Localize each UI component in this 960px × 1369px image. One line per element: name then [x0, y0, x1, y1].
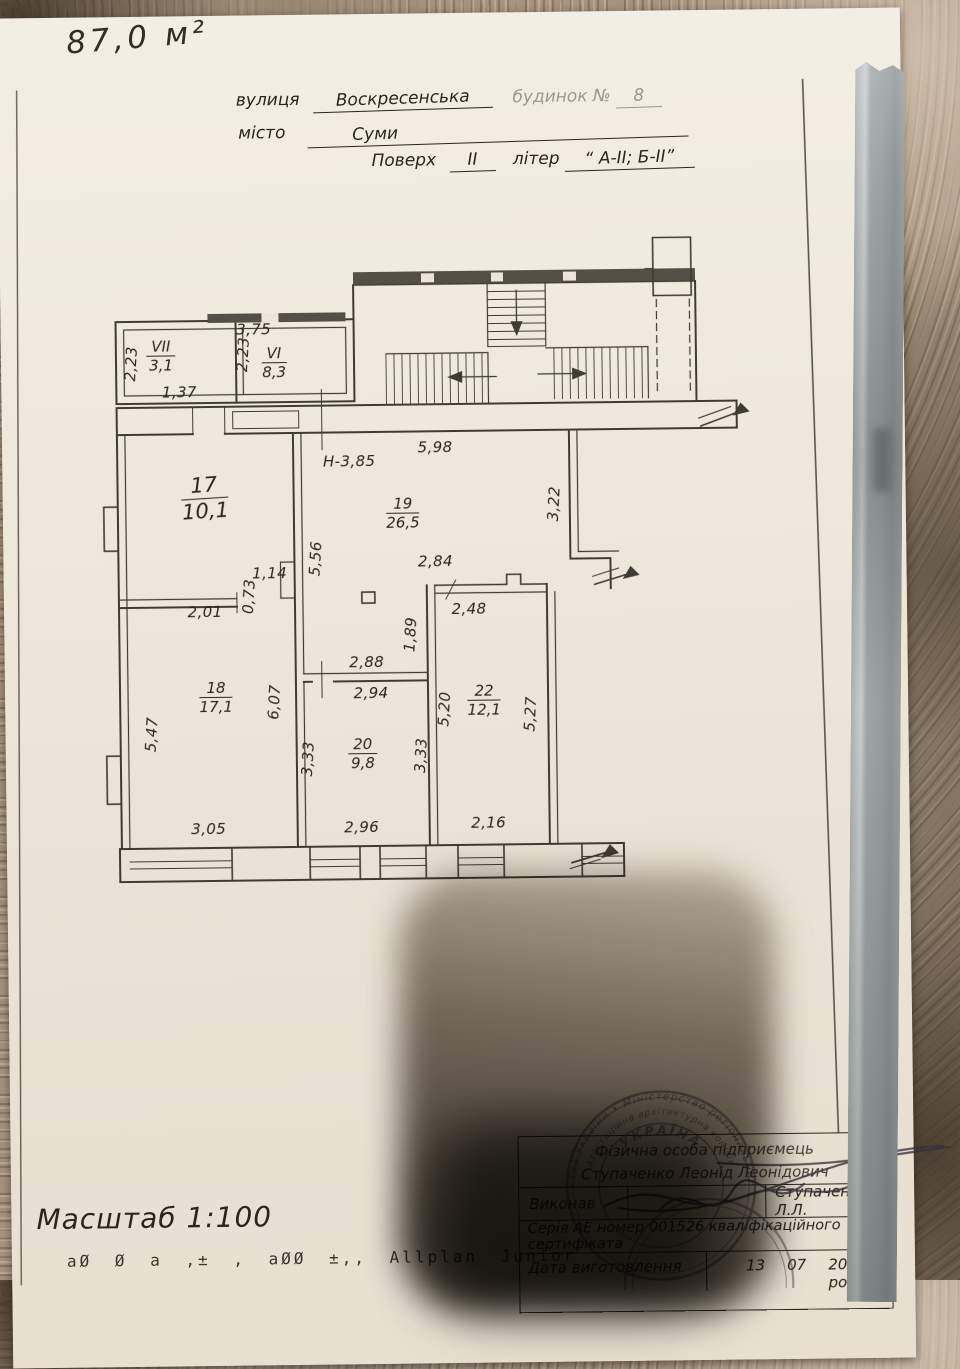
sheet-content: 87,0 м² вулиця Воскресенська будинок № 8…	[0, 0, 960, 1299]
title-block-author-row: Виконав Ступаченко Л.Л.	[519, 1183, 891, 1221]
dim-label: 3,22	[544, 486, 564, 522]
title-block-date-row: Дата виготовлення 13 07 2017 року	[520, 1249, 892, 1294]
dim-label: 5,98	[417, 438, 452, 456]
dim-label: 0,73	[239, 579, 259, 615]
dim-label: 3,05	[191, 820, 226, 838]
room-label-17: 17 10,1	[180, 472, 230, 526]
tape-strip	[847, 62, 906, 1302]
letter-value: “ А-ІІ; Б-ІІ”	[565, 146, 696, 172]
series-line: Серія АЕ номер 001526 кваліфікаційного с…	[528, 1217, 892, 1253]
dim-label: 2,88	[349, 653, 384, 671]
dim-label: 2,84	[418, 552, 453, 570]
dim-label: 2,23	[121, 346, 141, 382]
room-label-vi: VI 8,3	[261, 344, 286, 381]
letter-label: літер	[513, 149, 560, 170]
entity-line1: Фізична особа підприємець	[595, 1140, 814, 1161]
floor-value: ІІ	[449, 149, 496, 172]
date-day: 13	[746, 1256, 765, 1274]
entity-line2: Ступаченко Леонід Леонідович	[581, 1162, 829, 1183]
dim-label: 5,20	[434, 691, 454, 727]
header-floor-row: Поверх ІІ літер “ А-ІІ; Б-ІІ”	[371, 147, 695, 173]
dim-label: 2,01	[187, 603, 222, 621]
dim-label: 2,23	[233, 337, 253, 373]
building-label: будинок №	[512, 86, 610, 107]
street-label: вулиця	[236, 90, 300, 111]
dim-label: 2,48	[451, 600, 486, 618]
header-street-row: вулиця Воскресенська будинок № 8	[236, 85, 662, 112]
dim-label: 5,47	[142, 717, 162, 753]
header-city-row: місто Суми	[238, 118, 688, 145]
dim-label: 5,56	[305, 541, 325, 577]
city-label: місто	[238, 123, 285, 144]
author-label: Виконав	[529, 1194, 595, 1213]
dim-label: 2,94	[353, 684, 388, 702]
date-month: 07	[787, 1256, 806, 1274]
dim-label: 2,16	[471, 813, 506, 831]
dim-label: 3,33	[411, 737, 431, 773]
tape-smudge	[874, 428, 890, 492]
dim-label: 2,96	[344, 818, 379, 836]
title-block: Фізична особа підприємець Ступаченко Лео…	[517, 1132, 893, 1314]
room-label-18: 18 17,1	[199, 679, 233, 716]
room-label-19: 19 26,5	[386, 494, 420, 531]
dim-label: 3,75	[236, 320, 271, 338]
room-label-vii: VII 3,1	[146, 337, 176, 374]
plot-codes: аØ Ø а ‚± ‚ аØØ ±‚‚ Allplan Junior	[67, 1246, 577, 1271]
building-value: 8	[616, 85, 663, 108]
street-value: Воскресенська	[313, 86, 494, 114]
dim-label: 5,27	[520, 696, 540, 732]
paper-sheet: 87,0 м² вулиця Воскресенська будинок № 8…	[0, 8, 916, 1369]
dim-label: 6,07	[264, 684, 284, 720]
title-block-entity-row: Фізична особа підприємець Ступаченко Лео…	[518, 1133, 891, 1188]
date-label: Дата виготовлення	[528, 1257, 682, 1277]
dim-label: 3,33	[298, 741, 318, 777]
floor-plan-drawing	[0, 0, 960, 1286]
dim-label: 1,37	[162, 383, 197, 401]
scale-note: Масштаб 1:100	[36, 1200, 272, 1236]
height-note: Н-3,85	[323, 452, 376, 471]
title-block-series-row: Серія АЕ номер 001526 кваліфікаційного с…	[520, 1216, 892, 1254]
room-label-22: 22 12,1	[467, 681, 501, 718]
room-label-20: 20 9,8	[348, 735, 378, 772]
handwritten-area-note: 87,0 м²	[65, 14, 210, 62]
floor-label: Поверх	[371, 150, 436, 171]
city-value: Суми	[307, 114, 689, 148]
dim-label: 1,89	[400, 617, 420, 653]
